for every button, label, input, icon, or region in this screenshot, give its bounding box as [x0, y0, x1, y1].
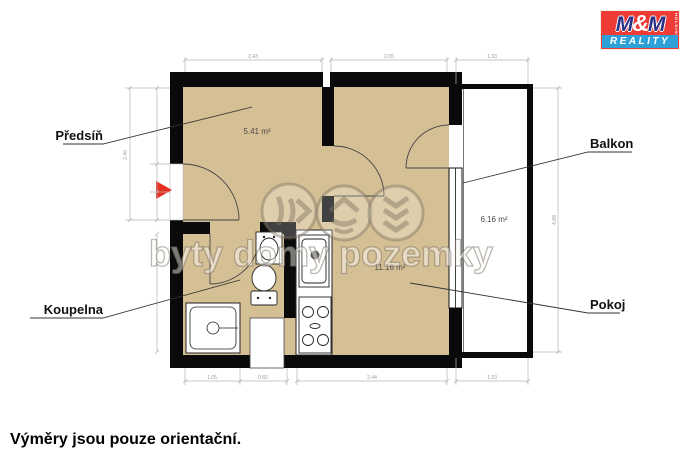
mm-reality-logo: M&M HOLDING REALITY: [600, 10, 680, 50]
area-predsin: 5.41 m²: [243, 127, 270, 136]
label-pokoj: Pokoj: [590, 297, 625, 312]
watermark-icons: [262, 184, 423, 240]
label-balkon: Balkon: [590, 136, 633, 151]
caption-text: Výměry jsou pouze orientační.: [10, 431, 241, 449]
bathtub: [186, 303, 240, 353]
dim-right: 4.88: [552, 215, 558, 225]
label-koupelna: Koupelna: [44, 302, 104, 317]
entrance-arrow-icon: [156, 181, 172, 199]
floorplan-svg: 2.43 2.05 1.33 1.05 0.82 2.44 1.33 2.40 …: [0, 0, 686, 457]
dim-bottom-2: 0.82: [258, 375, 268, 381]
dim-bottom-1: 1.05: [207, 375, 217, 381]
watermark-icon-1: [262, 184, 316, 238]
dim-left: 2.40: [123, 150, 129, 160]
dim-bottom-4: 1.33: [487, 375, 497, 381]
watermark-icon-2: [317, 186, 371, 240]
logo-reality-text: REALITY: [602, 35, 678, 48]
dim-top-2: 2.05: [384, 54, 394, 60]
dim-top-3: 1.33: [487, 54, 497, 60]
dim-bottom-3: 2.44: [367, 375, 377, 381]
watermark-icon-3: [369, 186, 423, 240]
entrance-opening: [170, 164, 183, 220]
stove: [299, 297, 331, 353]
dim-top-1: 2.43: [248, 54, 258, 60]
floorplan-image: 2.43 2.05 1.33 1.05 0.82 2.44 1.33 2.40 …: [0, 0, 686, 457]
area-balkon: 6.16 m²: [480, 215, 507, 224]
label-predsin: Předsíň: [55, 128, 103, 143]
watermark-text: byty domy pozemky: [149, 233, 493, 274]
wall-niche: [250, 318, 284, 368]
logo-mm-text: M&M: [600, 10, 680, 36]
